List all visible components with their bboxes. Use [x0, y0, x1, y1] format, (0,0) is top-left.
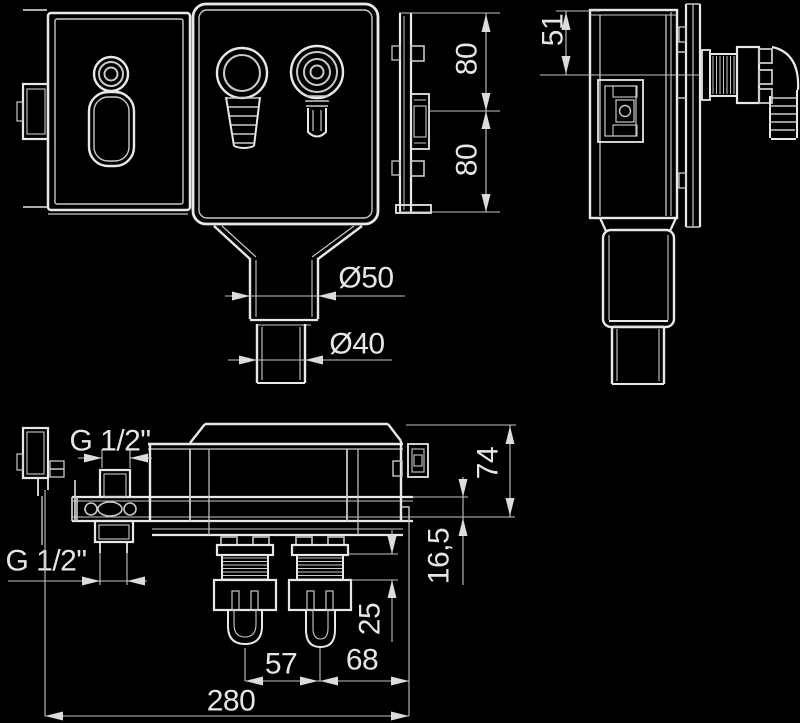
- dim-label-25: 25: [354, 603, 387, 635]
- inlet-connector-right: [289, 537, 351, 647]
- dim-label-74: 74: [472, 447, 505, 479]
- cover-profile: [148, 424, 428, 535]
- dim-label-57: 57: [265, 648, 297, 681]
- rear-body-inner: [55, 19, 183, 204]
- inlet-connector-left: [214, 537, 276, 644]
- dim-g-half-bottom: G 1/2": [5, 545, 147, 586]
- union-nut: [214, 580, 276, 610]
- hose-loop: [228, 610, 262, 644]
- right-outlet-fitting: [291, 46, 343, 137]
- tube-end: [306, 610, 335, 647]
- wall-plate-edge: [679, 4, 700, 227]
- union-nut: [737, 47, 759, 103]
- side-view: [590, 4, 798, 384]
- rear-view: [17, 10, 190, 214]
- dim-label-dia50: Ø50: [338, 262, 393, 295]
- dimensions: 80 80 51 Ø50 Ø40 G 1/2: [5, 11, 700, 721]
- cover-inner: [199, 10, 372, 218]
- flange-edge-strip: [392, 13, 431, 213]
- hose-connector-elbow: [702, 47, 798, 139]
- rear-body-outer: [48, 13, 190, 210]
- cover-outer: [193, 4, 378, 224]
- dim-label-80-upper: 80: [451, 43, 484, 75]
- union-nut: [289, 580, 351, 610]
- dim-label-16-5: 16,5: [423, 528, 456, 584]
- mounting-clip: [411, 94, 429, 149]
- dim-16-5: 16,5: [413, 477, 468, 585]
- mounting-plate-edge: [72, 480, 515, 535]
- dim-label-51: 51: [537, 14, 570, 46]
- side-outlet-pipe: [600, 218, 676, 384]
- dim-label-dia40: Ø40: [329, 328, 384, 361]
- side-mounting-tab: [17, 84, 48, 139]
- dim-label-g-half-top: G 1/2": [69, 425, 150, 458]
- internal-clip-screw: [598, 80, 643, 142]
- front-view: [193, 4, 378, 383]
- dim-label-280: 280: [207, 685, 256, 718]
- technical-drawing: 80 80 51 Ø50 Ø40 G 1/2: [0, 0, 800, 723]
- wall-bracket: [17, 428, 64, 545]
- left-hose-hook-fitting: [217, 48, 267, 148]
- dim-dia-40: Ø40: [228, 328, 392, 365]
- dim-25: 25: [348, 530, 398, 642]
- valve-handle: [98, 502, 122, 516]
- side-tab-screw: [408, 444, 428, 477]
- dim-label-80-lower: 80: [451, 144, 484, 176]
- dim-51: 51: [537, 11, 701, 75]
- dim-dia-50: Ø50: [225, 262, 405, 301]
- tap-valve: [77, 470, 150, 553]
- dim-g-half-top: G 1/2": [69, 425, 152, 469]
- dim-74: 74: [406, 425, 516, 517]
- screw-icon: [620, 106, 631, 117]
- dim-label-68: 68: [346, 644, 378, 677]
- dim-label-g-half-bottom: G 1/2": [5, 545, 86, 578]
- keyhole-mount: [89, 57, 134, 166]
- clip-tab-top: [411, 46, 424, 61]
- clip-tab-bottom: [411, 161, 424, 176]
